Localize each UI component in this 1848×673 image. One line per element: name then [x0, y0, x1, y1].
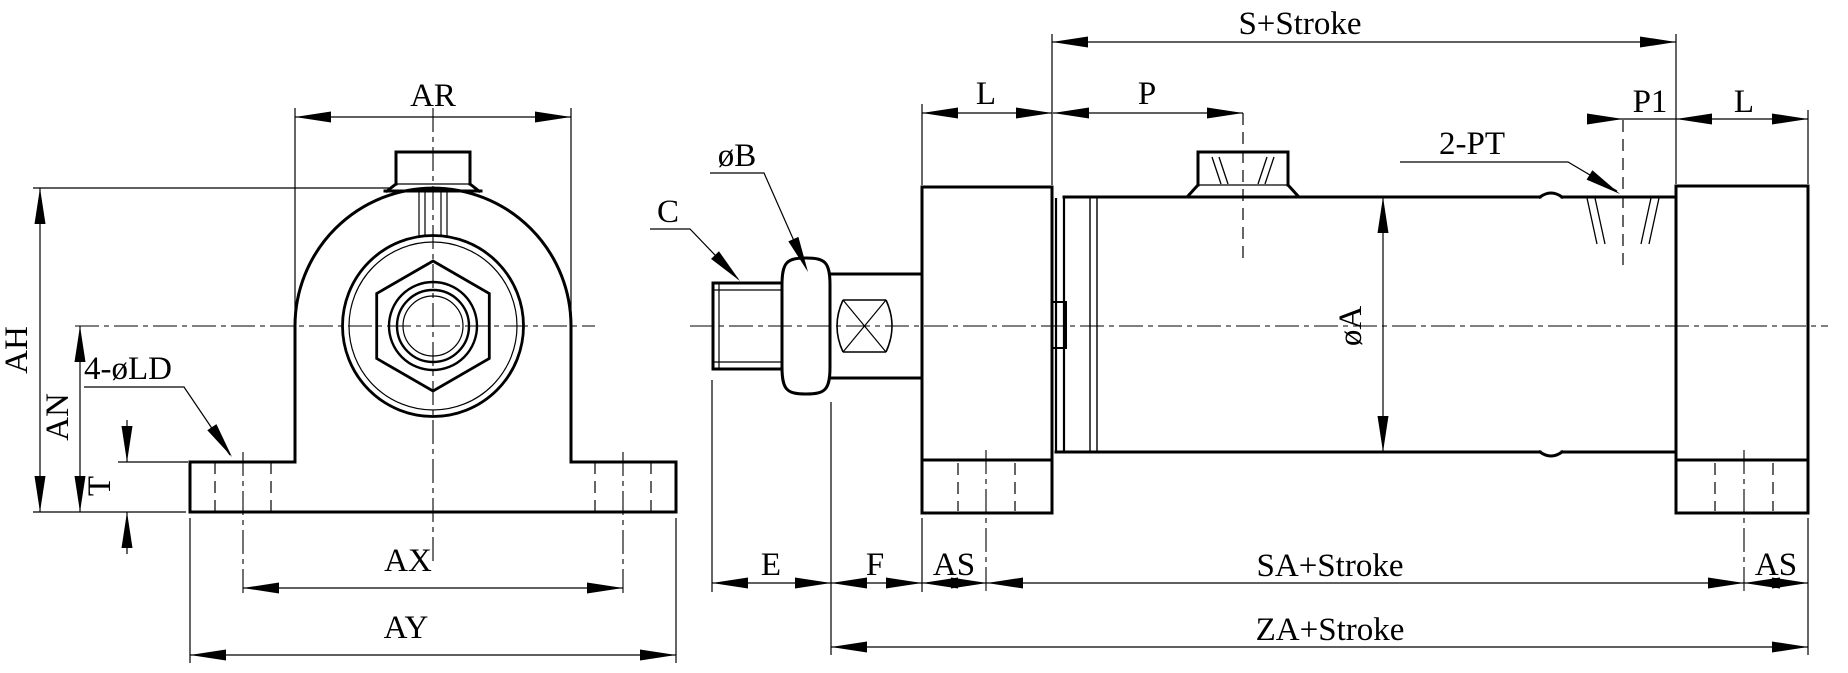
callout-ports-label: 2-PT: [1439, 126, 1505, 162]
dim-t-label: T: [82, 476, 118, 496]
cylinder-technical-drawing: AR AH AN T 4-: [0, 0, 1848, 673]
dim-as-front-label: AS: [933, 547, 975, 583]
dim-an-label: AN: [40, 393, 76, 441]
dim-ay-label: AY: [384, 610, 429, 646]
dim-bore-label: øA: [1333, 306, 1369, 347]
dim-l-front-label: L: [976, 76, 996, 112]
dim-p1-label: P1: [1633, 84, 1668, 120]
callout-rod-thread-label: C: [657, 194, 679, 230]
dim-p-label: P: [1138, 76, 1156, 112]
dim-sa-stroke-label: SA+Stroke: [1257, 548, 1404, 584]
callout-rod-flat-label: øB: [718, 138, 757, 174]
dim-e-label: E: [761, 547, 781, 583]
dim-f-label: F: [866, 547, 884, 583]
dim-as-rear-label: AS: [1755, 547, 1797, 583]
dim-za-stroke-label: ZA+Stroke: [1256, 612, 1405, 648]
dim-ax-label: AX: [384, 543, 432, 579]
dim-s-stroke-label: S+Stroke: [1238, 6, 1361, 42]
drawing-background: [0, 0, 1848, 673]
dim-l-rear-label: L: [1734, 84, 1754, 120]
callout-mount-holes-label: 4-øLD: [84, 351, 172, 387]
dim-ah-label: AH: [0, 326, 35, 374]
drawing-canvas: AR AH AN T 4-: [0, 0, 1848, 673]
dim-ar-label: AR: [410, 78, 456, 114]
